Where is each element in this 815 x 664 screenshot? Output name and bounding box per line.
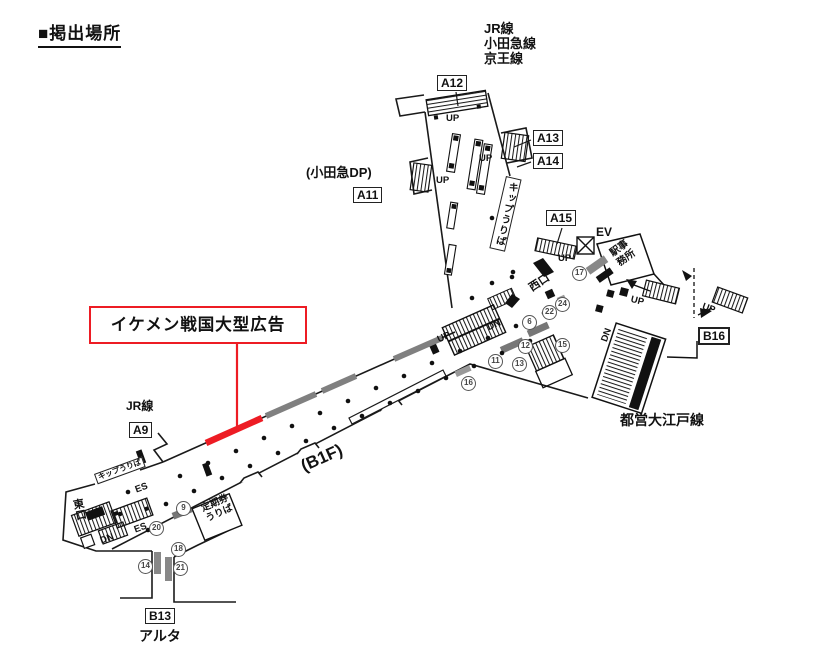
marker-9: 9 xyxy=(176,501,191,516)
marker-21: 21 xyxy=(173,561,188,576)
exit-label-a14: A14 xyxy=(533,153,563,169)
odakyu-dp-label: (小田急DP) xyxy=(306,166,372,181)
exit-label-a11: A11 xyxy=(353,187,382,203)
top-lines-label: JR線 小田急線 京王線 xyxy=(484,22,536,67)
marker-22: 22 xyxy=(542,305,557,320)
marker-14: 14 xyxy=(138,559,153,574)
up-a15: UP xyxy=(558,254,571,265)
marker-17: 17 xyxy=(572,266,587,281)
wall-ad-segments xyxy=(266,338,442,416)
exit-label-b16: B16 xyxy=(698,327,730,345)
marker-24: 24 xyxy=(555,297,570,312)
alta-label: アルタ xyxy=(139,628,181,644)
up-a12: UP xyxy=(446,114,459,125)
ev-label: EV xyxy=(596,226,612,240)
marker-16: 16 xyxy=(461,376,476,391)
marker-18: 18 xyxy=(171,542,186,557)
marker-13: 13 xyxy=(512,357,527,372)
elevator-icon xyxy=(577,237,594,254)
line-odakyu: 小田急線 xyxy=(484,37,536,52)
station-map: ■掲出場所 イケメン戦国大型広告 JR線 小田急線 京王線 A12 A13 A1… xyxy=(0,0,815,664)
ad-callout-label: イケメン戦国大型広告 xyxy=(111,316,286,334)
marker-11: 11 xyxy=(488,354,503,369)
marker-12: 12 xyxy=(518,339,533,354)
dashed-route xyxy=(682,268,694,318)
ad-callout-box: イケメン戦国大型広告 xyxy=(89,306,307,344)
line-jr: JR線 xyxy=(484,22,536,37)
stairs-a13-a14 xyxy=(501,132,528,161)
east-kiosks xyxy=(595,287,629,313)
line-keio: 京王線 xyxy=(484,52,536,67)
oedo-line-label: 都営大江戸線 xyxy=(620,412,704,428)
stairs-a11 xyxy=(410,163,432,192)
exit-label-b13: B13 xyxy=(145,608,175,624)
highlighted-ad-segment xyxy=(206,418,262,443)
page-title: ■掲出場所 xyxy=(38,24,121,48)
jr-line-label: JR線 xyxy=(126,400,153,414)
column-dots xyxy=(118,216,547,533)
marker-6: 6 xyxy=(522,315,537,330)
exit-label-a13: A13 xyxy=(533,130,563,146)
marker-20: 20 xyxy=(149,521,164,536)
up-a11: UP xyxy=(436,176,449,187)
exit-label-a9: A9 xyxy=(129,422,152,438)
exit-label-a15: A15 xyxy=(546,210,576,226)
exit-label-a12: A12 xyxy=(437,75,467,91)
marker-15: 15 xyxy=(555,338,570,353)
north-corridor xyxy=(396,92,562,308)
up-escalator: UP xyxy=(479,154,492,165)
